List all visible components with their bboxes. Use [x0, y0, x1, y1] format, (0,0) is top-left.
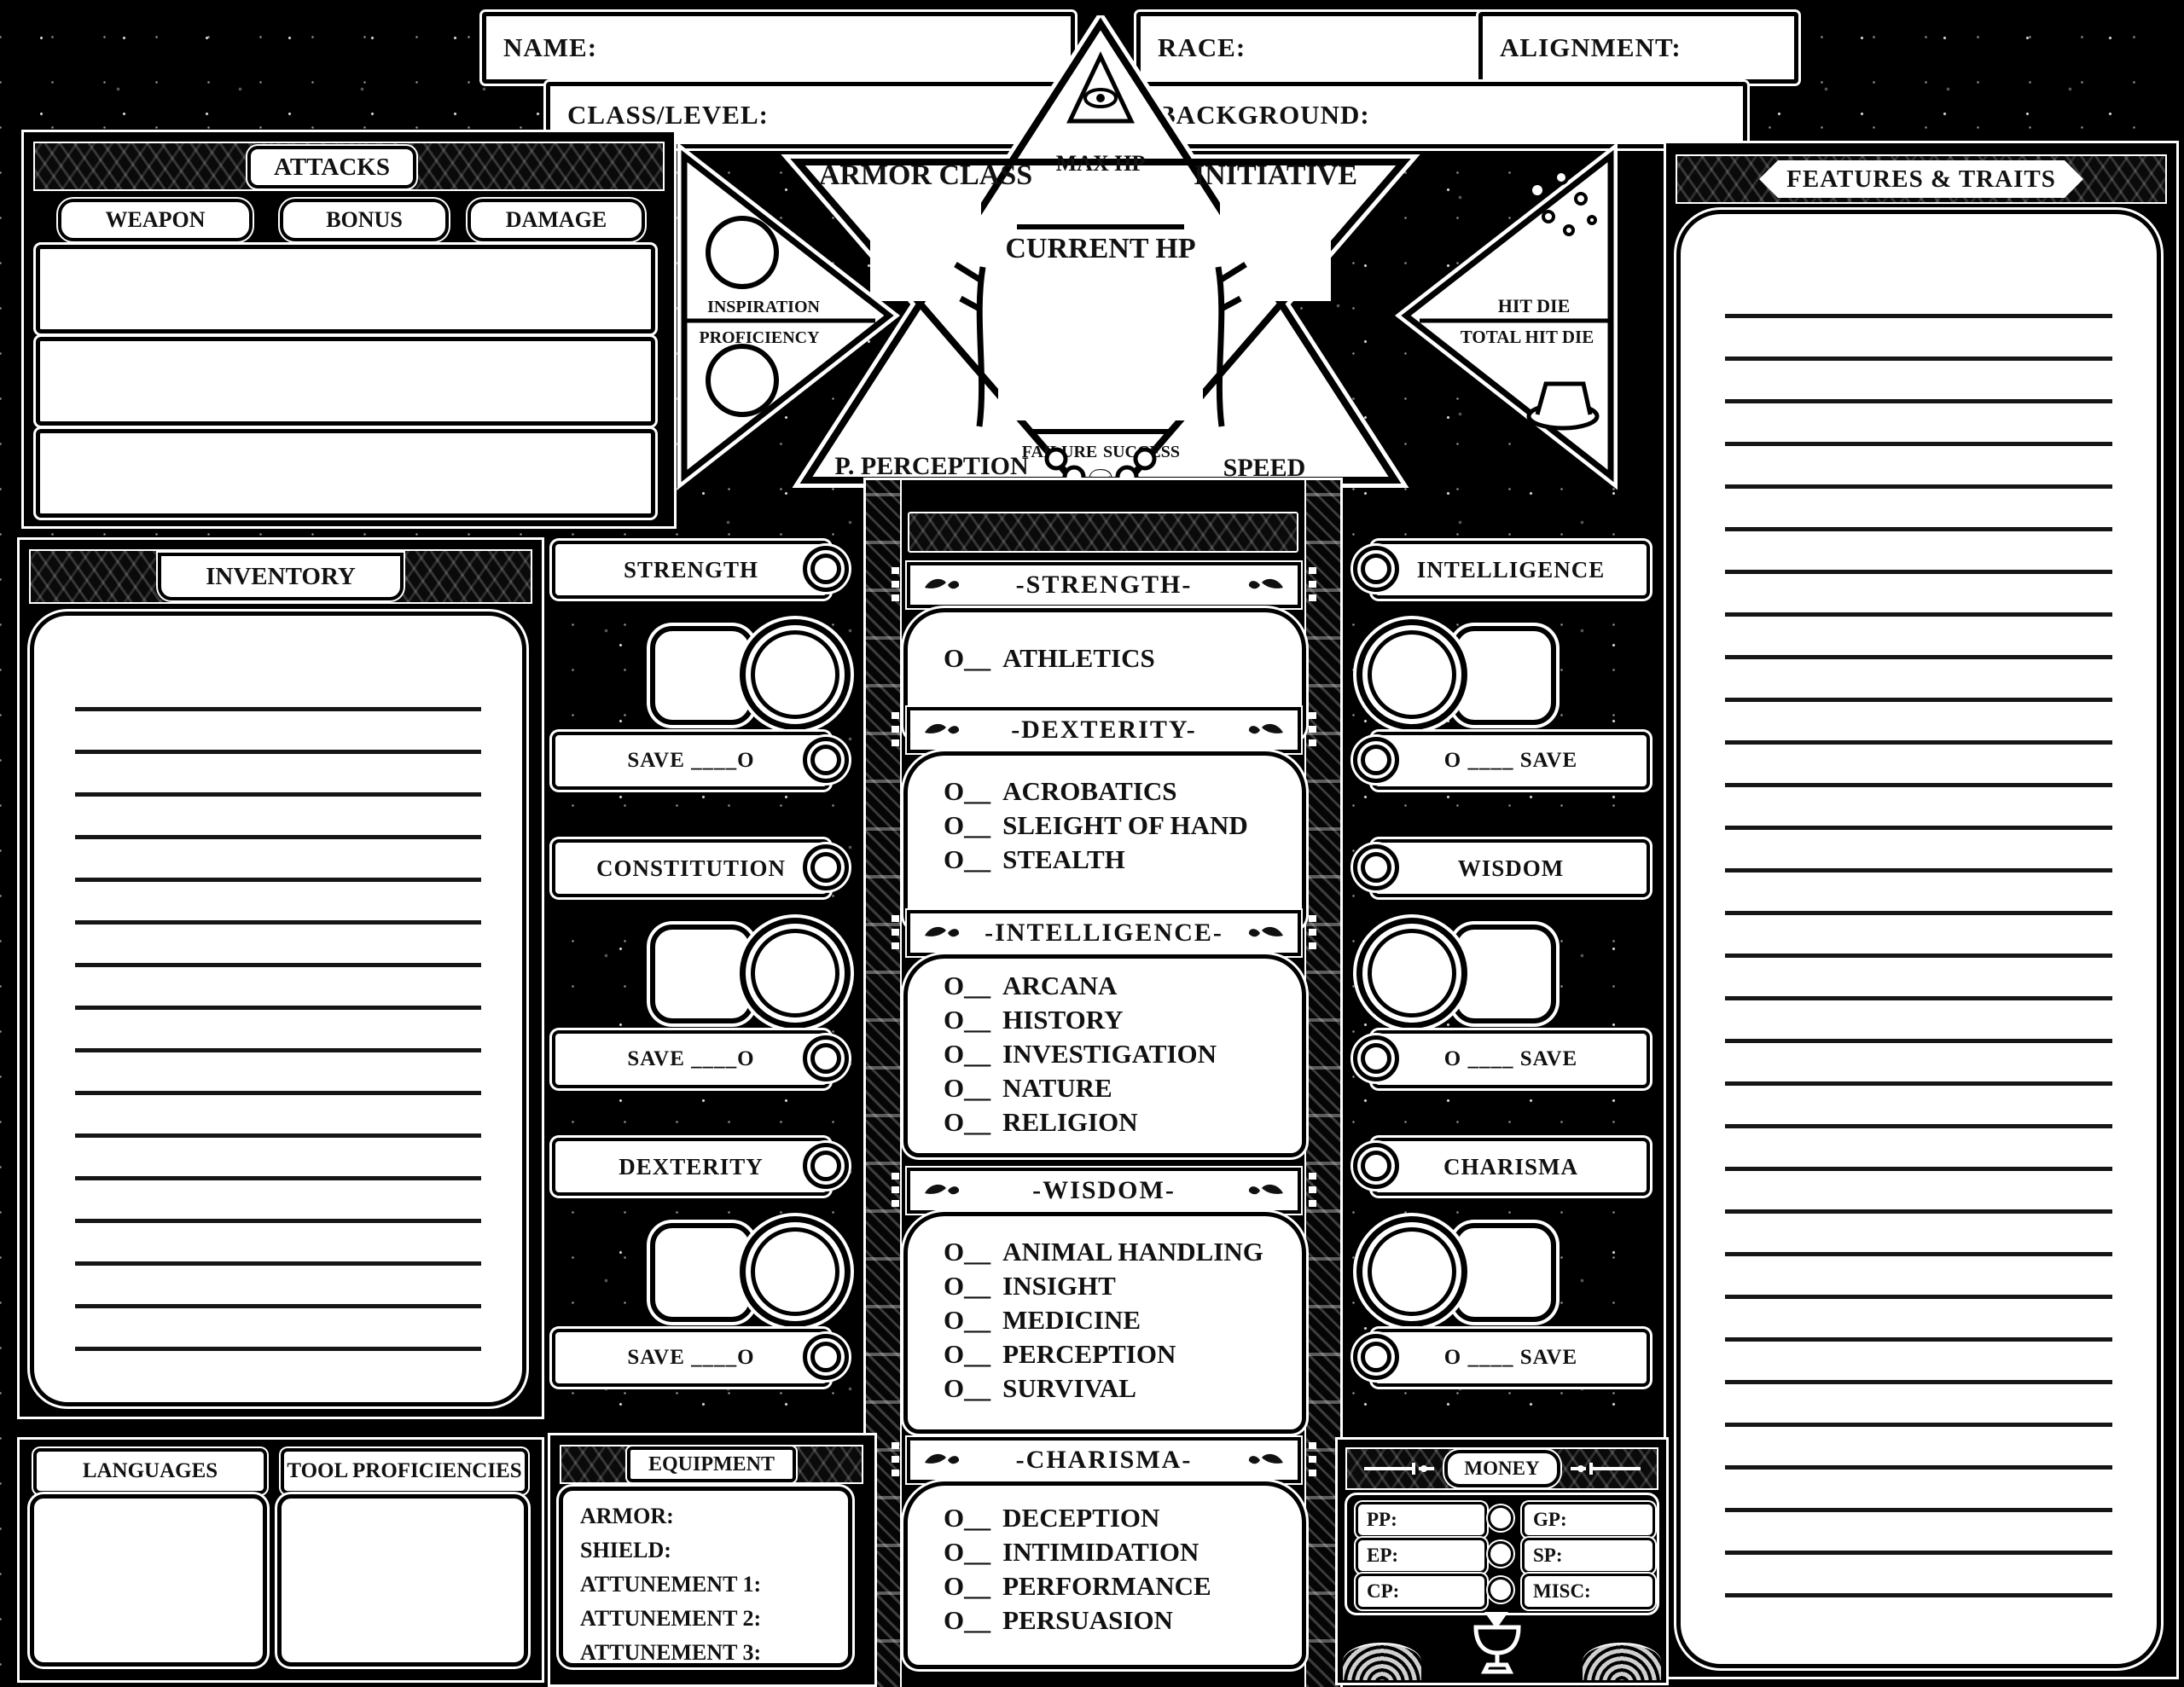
- dexterity-score-field[interactable]: [650, 1223, 754, 1322]
- skill-section-wisdom-title: -WISDOM-: [1032, 1176, 1176, 1205]
- attacks-title: ATTACKS: [274, 154, 390, 182]
- attacks-col-damage: DAMAGE: [468, 199, 645, 241]
- money-panel: MONEY PP: GP: EP: SP: CP: MISC:: [1335, 1437, 1669, 1685]
- proficiency-label: PROFICIENCY: [699, 328, 820, 347]
- skill-name: RELIGION: [1002, 1105, 1137, 1139]
- inventory-title: INVENTORY: [206, 563, 356, 591]
- strength-label-bar: STRENGTH: [552, 541, 830, 599]
- skill-checkbox[interactable]: O__: [944, 1303, 990, 1337]
- charisma-label-bar: CHARISMA: [1372, 1138, 1650, 1196]
- constitution-misc-circle[interactable]: [803, 844, 849, 890]
- equipment-title: EQUIPMENT: [648, 1453, 775, 1476]
- armor-class-field[interactable]: [870, 199, 981, 301]
- inventory-title-pill: INVENTORY: [158, 553, 404, 600]
- money-header-ornament: MONEY: [1343, 1445, 1661, 1493]
- skill-row-nature[interactable]: O__NATURE: [908, 1071, 1302, 1105]
- attack-row[interactable]: [36, 245, 655, 333]
- strength-save-circle[interactable]: [803, 737, 849, 783]
- charisma-label: CHARISMA: [1443, 1154, 1578, 1180]
- skill-name: INVESTIGATION: [1002, 1037, 1217, 1071]
- constitution-label-bar: CONSTITUTION: [552, 839, 830, 897]
- ability-block-intelligence: INTELLIGENCE O ____ SAVE: [1333, 537, 1657, 793]
- gp-label: GP:: [1533, 1509, 1567, 1531]
- skill-section-charisma-title: -CHARISMA-: [1016, 1446, 1193, 1475]
- strength-score-field[interactable]: [650, 626, 754, 725]
- wisdom-modifier-circle[interactable]: [1356, 918, 1467, 1029]
- skill-name: SLEIGHT OF HAND: [1002, 809, 1248, 843]
- leaf-flourish-icon: [1246, 720, 1286, 740]
- constitution-label: CONSTITUTION: [596, 855, 786, 882]
- skill-name: ANIMAL HANDLING: [1002, 1235, 1263, 1269]
- death-success-circle[interactable]: [1136, 449, 1154, 468]
- dexterity-label-bar: DEXTERITY: [552, 1138, 830, 1196]
- damage-column-label: DAMAGE: [506, 207, 607, 233]
- skill-row-insight[interactable]: O__INSIGHT: [908, 1269, 1302, 1303]
- skill-checkbox[interactable]: O__: [944, 774, 990, 809]
- money-title: MONEY: [1464, 1458, 1539, 1480]
- skill-section-strength-title: -STRENGTH-: [1016, 571, 1193, 600]
- skill-row-perception[interactable]: O__PERCEPTION: [908, 1337, 1302, 1371]
- equipment-attunement2-field[interactable]: ATTUNEMENT 2:: [580, 1602, 848, 1636]
- attacks-col-bonus: BONUS: [280, 199, 449, 241]
- skill-name: STEALTH: [1002, 843, 1125, 877]
- leaf-flourish-icon: [1246, 1180, 1286, 1201]
- attack-row[interactable]: [36, 429, 655, 518]
- money-ep-field[interactable]: EP:: [1356, 1538, 1487, 1574]
- intelligence-label-bar: INTELLIGENCE: [1372, 541, 1650, 599]
- ability-block-dexterity: DEXTERITY SAVE ____O: [543, 1134, 868, 1390]
- sword-right-icon: [1569, 1461, 1642, 1476]
- ability-block-wisdom: WISDOM O ____ SAVE: [1333, 836, 1657, 1092]
- skill-name: SURVIVAL: [1002, 1371, 1136, 1406]
- intelligence-modifier-circle[interactable]: [1356, 619, 1467, 730]
- dexterity-misc-circle[interactable]: [803, 1143, 849, 1189]
- death-failure-circle[interactable]: [1047, 449, 1066, 468]
- skills-top-banner: [905, 509, 1301, 555]
- skill-checkbox[interactable]: O__: [944, 1535, 990, 1569]
- intelligence-save-bar[interactable]: O ____ SAVE: [1372, 732, 1650, 790]
- leaf-flourish-icon: [922, 720, 961, 740]
- inventory-ruled-lines: [75, 669, 481, 1377]
- skills-column: -STRENGTH- O__ATHLETICS -DEXTERITY- O__A…: [863, 478, 1343, 1687]
- features-body[interactable]: [1676, 210, 2161, 1668]
- wisdom-save-circle[interactable]: [1353, 1035, 1399, 1081]
- max-hp-label: MAX HP: [1056, 151, 1146, 176]
- intelligence-label: INTELLIGENCE: [1417, 557, 1606, 583]
- skill-checkbox[interactable]: O__: [944, 1105, 990, 1139]
- skill-row-animal-handling[interactable]: O__ANIMAL HANDLING: [908, 1235, 1302, 1269]
- dexterity-label: DEXTERITY: [619, 1154, 764, 1180]
- weapon-column-label: WEAPON: [106, 207, 206, 233]
- skill-checkbox[interactable]: O__: [944, 1037, 990, 1071]
- money-divider-circle: [1488, 1541, 1513, 1567]
- goblet-icon: [1467, 1624, 1527, 1677]
- skill-checkbox[interactable]: O__: [944, 1269, 990, 1303]
- attacks-col-weapon: WEAPON: [58, 199, 253, 241]
- character-sheet: NAME: RACE: ALIGNMENT: CLASS/LEVEL: BACK…: [0, 0, 2184, 1687]
- constitution-save-bar[interactable]: SAVE ____O: [552, 1030, 830, 1088]
- strength-modifier-circle[interactable]: [740, 619, 851, 730]
- skill-row-arcana[interactable]: O__ARCANA: [908, 969, 1302, 1003]
- intelligence-save-label: O ____ SAVE: [1444, 749, 1577, 773]
- initiative-label: INITIATIVE: [1194, 159, 1357, 191]
- money-pp-field[interactable]: PP:: [1356, 1502, 1487, 1538]
- skill-section-dexterity-title: -DEXTERITY-: [1011, 716, 1197, 745]
- languages-title: LANGUAGES: [83, 1459, 218, 1483]
- leaf-flourish-icon: [922, 923, 961, 943]
- skill-name: INTIMIDATION: [1002, 1535, 1199, 1569]
- features-header-ornament: FEATURES & TRAITS: [1673, 152, 2169, 206]
- skill-name: MEDICINE: [1002, 1303, 1141, 1337]
- skill-checkbox[interactable]: O__: [944, 1603, 990, 1638]
- passive-perception-label: P. PERCEPTION: [834, 452, 1029, 480]
- equipment-panel: EQUIPMENT ARMOR: SHIELD: ATTUNEMENT 1: A…: [548, 1433, 877, 1687]
- vitals-hexagram: ARMOR CLASS MAX HP INITIATIVE CURRENT HP…: [674, 15, 1621, 527]
- leaf-flourish-icon: [922, 575, 961, 595]
- leaf-flourish-icon: [1246, 923, 1286, 943]
- skill-name: ATHLETICS: [1002, 641, 1155, 675]
- sword-left-icon: [1362, 1461, 1436, 1476]
- bonus-column-label: BONUS: [326, 207, 403, 233]
- money-sp-field[interactable]: SP:: [1522, 1538, 1655, 1574]
- ep-label: EP:: [1367, 1545, 1398, 1567]
- skill-checkbox[interactable]: O__: [944, 1337, 990, 1371]
- current-hp-label: CURRENT HP: [1005, 233, 1195, 264]
- skill-row-investigation[interactable]: O__INVESTIGATION: [908, 1037, 1302, 1071]
- equipment-attunement3-field[interactable]: ATTUNEMENT 3:: [580, 1636, 848, 1670]
- skill-checkbox[interactable]: O__: [944, 809, 990, 843]
- skill-checkbox[interactable]: O__: [944, 1071, 990, 1105]
- skill-row-performance[interactable]: O__PERFORMANCE: [908, 1569, 1302, 1603]
- skill-name: PERCEPTION: [1002, 1337, 1176, 1371]
- pp-label: PP:: [1367, 1509, 1397, 1531]
- charisma-misc-circle[interactable]: [1353, 1143, 1399, 1189]
- leaf-flourish-icon: [1246, 1450, 1286, 1470]
- skill-name: ARCANA: [1002, 969, 1117, 1003]
- cp-label: CP:: [1367, 1580, 1399, 1603]
- wisdom-score-field[interactable]: [1452, 925, 1556, 1023]
- skill-section-intelligence-header: -INTELLIGENCE-: [907, 910, 1301, 956]
- ability-block-strength: STRENGTH SAVE ____O: [543, 537, 868, 793]
- skill-checkbox[interactable]: O__: [944, 969, 990, 1003]
- coin-pile-right: [1583, 1643, 1661, 1680]
- wisdom-misc-circle[interactable]: [1353, 844, 1399, 890]
- initiative-field[interactable]: [1220, 199, 1331, 301]
- features-panel: FEATURES & TRAITS: [1664, 141, 2179, 1679]
- equipment-armor-field[interactable]: ARMOR:: [580, 1499, 848, 1533]
- dexterity-modifier-circle[interactable]: [740, 1216, 851, 1327]
- skill-checkbox[interactable]: O__: [944, 641, 990, 675]
- inspiration-circle[interactable]: [708, 218, 776, 287]
- skill-name: PERFORMANCE: [1002, 1569, 1211, 1603]
- money-title-pill: MONEY: [1444, 1450, 1560, 1487]
- total-hit-die-label: TOTAL HIT DIE: [1461, 327, 1594, 347]
- ability-block-charisma: CHARISMA O ____ SAVE: [1333, 1134, 1657, 1390]
- skill-name: INSIGHT: [1002, 1269, 1116, 1303]
- intelligence-save-circle[interactable]: [1353, 737, 1399, 783]
- skill-row-acrobatics[interactable]: O__ACROBATICS: [908, 774, 1302, 809]
- skill-row-sleight-of-hand[interactable]: O__SLEIGHT OF HAND: [908, 809, 1302, 843]
- languages-tools-panel: LANGUAGES TOOL PROFICIENCIES: [17, 1437, 544, 1683]
- armor-class-label: ARMOR CLASS: [819, 159, 1032, 191]
- leaf-flourish-icon: [922, 1180, 961, 1201]
- eye-pupil: [1096, 94, 1105, 102]
- constitution-modifier-circle[interactable]: [740, 918, 851, 1029]
- inventory-header-ornament: INVENTORY: [26, 547, 535, 606]
- money-cp-field[interactable]: CP:: [1356, 1574, 1487, 1609]
- equipment-header-ornament: EQUIPMENT: [557, 1442, 866, 1487]
- skill-name: PERSUASION: [1002, 1603, 1173, 1638]
- skill-row-survival[interactable]: O__SURVIVAL: [908, 1371, 1302, 1406]
- name-label: NAME:: [503, 32, 597, 63]
- skill-row-deception[interactable]: O__DECEPTION: [908, 1501, 1302, 1535]
- charisma-save-bar[interactable]: O ____ SAVE: [1372, 1329, 1650, 1387]
- sp-label: SP:: [1533, 1545, 1563, 1567]
- equipment-body: ARMOR: SHIELD: ATTUNEMENT 1: ATTUNEMENT …: [559, 1487, 852, 1667]
- wisdom-save-label: O ____ SAVE: [1444, 1047, 1577, 1071]
- intelligence-misc-circle[interactable]: [1353, 546, 1399, 592]
- charisma-save-circle[interactable]: [1353, 1334, 1399, 1380]
- intelligence-score-field[interactable]: [1452, 626, 1556, 725]
- equipment-attunement1-field[interactable]: ATTUNEMENT 1:: [580, 1568, 848, 1602]
- money-divider-circle: [1488, 1505, 1513, 1531]
- charisma-modifier-circle[interactable]: [1356, 1216, 1467, 1327]
- skill-checkbox[interactable]: O__: [944, 1235, 990, 1269]
- languages-title-pill: LANGUAGES: [33, 1448, 267, 1494]
- coin-pile-left: [1343, 1643, 1421, 1680]
- features-title: FEATURES & TRAITS: [1786, 165, 2056, 194]
- dexterity-save-circle[interactable]: [803, 1334, 849, 1380]
- inventory-panel: INVENTORY: [17, 537, 544, 1419]
- skill-name: DECEPTION: [1002, 1501, 1159, 1535]
- max-hp-field[interactable]: [1041, 182, 1160, 223]
- equipment-shield-field[interactable]: SHIELD:: [580, 1533, 848, 1568]
- money-gp-field[interactable]: GP:: [1522, 1502, 1655, 1538]
- skill-row-persuasion[interactable]: O__PERSUASION: [908, 1603, 1302, 1638]
- money-misc-field[interactable]: MISC:: [1522, 1574, 1655, 1609]
- skill-name: ACROBATICS: [1002, 774, 1176, 809]
- leaf-flourish-icon: [922, 1450, 961, 1470]
- tools-title: TOOL PROFICIENCIES: [287, 1459, 521, 1483]
- skill-row-athletics[interactable]: O__ATHLETICS: [908, 641, 1302, 675]
- skill-section-charisma-header: -CHARISMA-: [907, 1437, 1301, 1483]
- constitution-save-label: SAVE ____O: [627, 1047, 754, 1071]
- skill-section-strength-header: -STRENGTH-: [907, 562, 1301, 608]
- leaf-flourish-icon: [1246, 575, 1286, 595]
- strength-save-bar[interactable]: SAVE ____O: [552, 732, 830, 790]
- ability-block-constitution: CONSTITUTION SAVE ____O: [543, 836, 868, 1092]
- proficiency-circle[interactable]: [708, 346, 776, 415]
- attacks-panel: ATTACKS WEAPON BONUS DAMAGE: [21, 130, 677, 529]
- skill-box-wisdom: O__ANIMAL HANDLING O__INSIGHT O__MEDICIN…: [903, 1212, 1306, 1434]
- languages-body[interactable]: [30, 1494, 267, 1667]
- skill-section-dexterity-header: -DEXTERITY-: [907, 707, 1301, 753]
- skill-box-charisma: O__DECEPTION O__INTIMIDATION O__PERFORMA…: [903, 1481, 1306, 1669]
- wisdom-label: WISDOM: [1458, 855, 1565, 882]
- inventory-body[interactable]: [30, 612, 526, 1406]
- dexterity-save-label: SAVE ____O: [627, 1346, 754, 1370]
- skill-checkbox[interactable]: O__: [944, 1569, 990, 1603]
- skill-box-dexterity: O__ACROBATICS O__SLEIGHT OF HAND O__STEA…: [903, 751, 1306, 930]
- skill-row-history[interactable]: O__HISTORY: [908, 1003, 1302, 1037]
- money-divider-circle: [1488, 1577, 1513, 1603]
- charisma-score-field[interactable]: [1452, 1223, 1556, 1322]
- skill-checkbox[interactable]: O__: [944, 1371, 990, 1406]
- inspiration-label: INSPIRATION: [707, 298, 820, 316]
- skill-section-wisdom-header: -WISDOM-: [907, 1168, 1301, 1214]
- skill-row-intimidation[interactable]: O__INTIMIDATION: [908, 1535, 1302, 1569]
- skill-row-stealth[interactable]: O__STEALTH: [908, 843, 1302, 877]
- attack-row[interactable]: [36, 337, 655, 426]
- skill-name: NATURE: [1002, 1071, 1112, 1105]
- skill-checkbox[interactable]: O__: [944, 843, 990, 877]
- strength-save-label: SAVE ____O: [627, 749, 754, 773]
- hit-die-label: HIT DIE: [1498, 295, 1571, 316]
- wisdom-save-bar[interactable]: O ____ SAVE: [1372, 1030, 1650, 1088]
- skill-section-intelligence-title: -INTELLIGENCE-: [985, 919, 1223, 948]
- money-fields-frame: PP: GP: EP: SP: CP: MISC:: [1345, 1493, 1659, 1615]
- skill-checkbox[interactable]: O__: [944, 1003, 990, 1037]
- dexterity-save-bar[interactable]: SAVE ____O: [552, 1329, 830, 1387]
- misc-label: MISC:: [1533, 1580, 1591, 1603]
- tools-title-pill: TOOL PROFICIENCIES: [281, 1448, 528, 1494]
- attacks-title-pill: ATTACKS: [247, 146, 416, 188]
- charisma-save-label: O ____ SAVE: [1444, 1346, 1577, 1370]
- skill-row-religion[interactable]: O__RELIGION: [908, 1105, 1302, 1139]
- features-ruled-lines: [1725, 275, 2112, 1628]
- constitution-score-field[interactable]: [650, 925, 754, 1023]
- skill-name: HISTORY: [1002, 1003, 1123, 1037]
- skill-row-medicine[interactable]: O__MEDICINE: [908, 1303, 1302, 1337]
- equipment-title-pill: EQUIPMENT: [627, 1446, 796, 1482]
- tools-body[interactable]: [277, 1494, 528, 1667]
- wisdom-label-bar: WISDOM: [1372, 839, 1650, 897]
- current-hp-field[interactable]: [998, 267, 1203, 420]
- strength-misc-circle[interactable]: [803, 546, 849, 592]
- skill-checkbox[interactable]: O__: [944, 1501, 990, 1535]
- constitution-save-circle[interactable]: [803, 1035, 849, 1081]
- features-title-pill: FEATURES & TRAITS: [1759, 160, 2083, 198]
- skill-box-intelligence: O__ARCANA O__HISTORY O__INVESTIGATION O_…: [903, 954, 1306, 1157]
- strength-label: STRENGTH: [624, 557, 758, 583]
